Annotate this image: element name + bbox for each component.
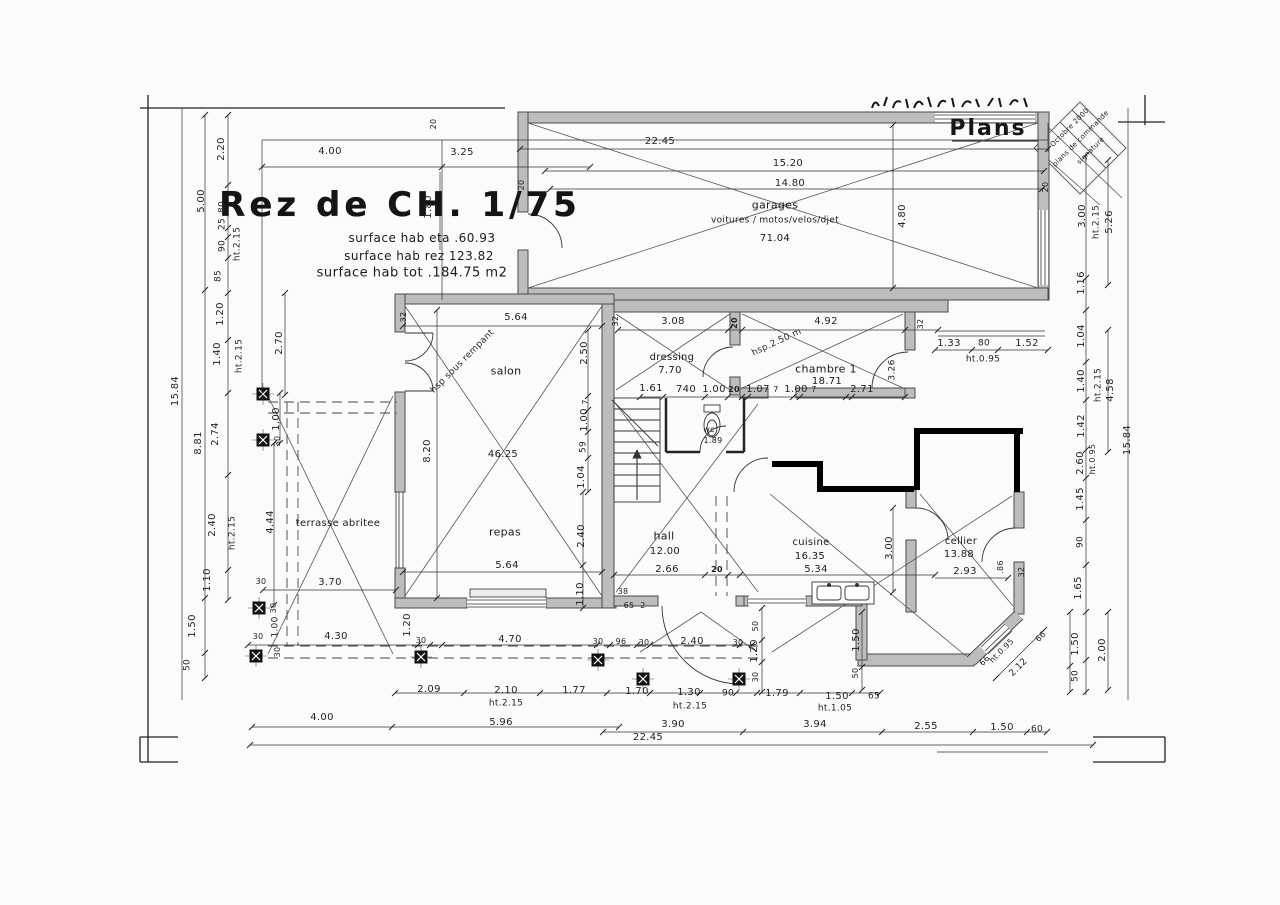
dimension-label: 20	[731, 317, 739, 329]
dimension-label: 1.50	[825, 692, 848, 702]
dimension-label: 30	[274, 436, 282, 447]
dimension-label: 15.84	[171, 376, 181, 406]
room-label: 71.04	[760, 234, 790, 244]
dimension-label: ht.2.15	[1093, 205, 1102, 239]
dimension-label: 4.44	[266, 510, 276, 533]
dimension-label: 2.60	[1076, 451, 1086, 474]
dimension-label: 1.00	[702, 385, 725, 395]
dimension-label: 90	[1077, 536, 1086, 548]
room-label: 16.35	[795, 552, 825, 562]
dimension-label: 1.07	[746, 385, 769, 395]
dimension-label: 30	[639, 639, 650, 647]
dimension-label: 32	[917, 319, 925, 330]
dimension-label: 1.50	[990, 723, 1013, 733]
room-label: cuisine	[792, 538, 829, 548]
dimension-label: 3.26	[889, 359, 898, 380]
dimension-label: 5.64	[504, 313, 527, 323]
dimension-label: 60	[1031, 726, 1043, 735]
dimension-label: 1.33	[937, 339, 960, 349]
dimension-label: 5.64	[495, 561, 518, 571]
dimension-label: 85	[215, 270, 224, 282]
dimension-label: 1.04	[1077, 324, 1087, 347]
dimension-label: ht.2.15	[489, 700, 523, 709]
title-text: surface hab eta .60.93	[349, 232, 496, 244]
dimension-label: 22.45	[633, 733, 663, 743]
room-label: voitures / motos/velos/djet	[711, 217, 839, 226]
dimension-label: 1.00	[784, 385, 807, 395]
dimension-label: 50	[752, 621, 760, 632]
dimension-label: 1.42	[1077, 414, 1087, 437]
dimension-label: 1.40	[1077, 369, 1087, 392]
dimension-label: 3.00	[885, 536, 895, 559]
dimension-label: 30	[256, 578, 267, 586]
dimension-label: 5.34	[804, 565, 827, 575]
dimension-label: 1.61	[639, 384, 662, 394]
dimension-label: 20	[1042, 182, 1050, 193]
room-label: 12.00	[650, 547, 680, 557]
title-text: surface hab rez 123.82	[344, 250, 494, 262]
dimension-label: 4.92	[814, 317, 837, 327]
dimension-label: 1.50	[852, 628, 862, 651]
dimension-label: 2.09	[417, 685, 440, 695]
dimension-label: 65	[624, 602, 635, 610]
room-label: 7.70	[658, 366, 681, 376]
dimension-label: 8.20	[423, 439, 433, 462]
room-label: 2.66	[655, 565, 678, 575]
dimension-label: 2.20	[217, 137, 227, 160]
dimension-label: 1.79	[765, 689, 788, 699]
dimension-label: ht.2.15	[229, 516, 238, 550]
dimension-label: 2.00	[1098, 638, 1108, 661]
dimension-label: 1.00	[580, 408, 590, 431]
dimension-label: 30	[416, 637, 427, 645]
dimension-label: 2	[640, 602, 645, 610]
dimension-label: 1.20	[216, 302, 226, 325]
dimension-label: 1.10	[203, 568, 213, 591]
dimension-label: ht.0.95	[1089, 444, 1097, 475]
dimension-label: 50	[1072, 670, 1081, 682]
dimension-label: 90	[722, 690, 734, 699]
room-label: chambre 1	[795, 364, 857, 375]
dimension-label: 1.50	[1071, 632, 1081, 655]
room-label: repas	[489, 527, 521, 538]
dimension-label: 4.30	[324, 632, 347, 642]
room-label: salon	[491, 366, 522, 377]
dimension-label: 1.50	[188, 614, 198, 637]
dimension-label: ht.2.15	[234, 227, 243, 261]
dimension-label: 38	[618, 588, 629, 596]
dimension-label: 14.80	[775, 179, 805, 189]
dimension-label: 3.70	[318, 578, 341, 588]
dimension-label: 32	[400, 312, 408, 323]
dimension-label: 30	[270, 603, 278, 614]
dimension-label: 2.71	[850, 385, 873, 395]
dimension-label: 2.12	[1008, 657, 1029, 678]
room-label: terrasse abritee	[296, 519, 380, 529]
dimension-label: 30	[733, 639, 744, 647]
dimension-label: ht.0.95	[966, 356, 1000, 365]
dimension-label: 22.45	[645, 137, 675, 147]
dimension-label: 5.00	[197, 189, 207, 212]
dimension-label: 1.00	[272, 616, 281, 637]
dimension-label: ht.1.05	[818, 705, 852, 714]
dimension-label: 20	[711, 566, 723, 574]
dimension-label: 4.58	[1106, 378, 1116, 401]
dimension-label: 7	[811, 386, 816, 394]
dimension-label: 740	[676, 385, 696, 395]
dimension-label: 65	[868, 693, 880, 702]
room-label: hall	[653, 531, 674, 542]
dimension-label: 25	[219, 218, 228, 230]
sheet-label: Plans	[949, 118, 1026, 140]
dimension-label: 1.45	[1076, 487, 1086, 510]
dimension-label: 30	[593, 638, 604, 646]
dimension-label: 8.81	[194, 431, 204, 454]
room-label: 13.88	[944, 550, 974, 560]
dimension-label: 80	[219, 201, 228, 213]
dimension-label: .86	[997, 560, 1005, 574]
dimension-label: 2.40	[208, 513, 218, 536]
dimension-label: 50	[852, 668, 860, 679]
dimension-label: 96	[616, 638, 627, 646]
dimension-label: 2.55	[914, 722, 937, 732]
dimension-label: 20	[430, 119, 438, 130]
dimension-label: 5.26	[1105, 210, 1115, 233]
dimension-label: 3.90	[661, 720, 684, 730]
dimension-label: 4.70	[498, 635, 521, 645]
dimension-label: 30	[253, 633, 264, 641]
dimension-label: 32	[1018, 567, 1026, 578]
dimension-label: 30	[274, 647, 282, 658]
dimension-label: 3.00	[1078, 204, 1088, 227]
dimension-label: 1.70	[625, 687, 648, 697]
room-label: garages	[752, 200, 799, 211]
dimension-label: 15.20	[773, 159, 803, 169]
dimension-label: 7	[582, 399, 590, 404]
slope-note: hsp sous rempant	[430, 329, 497, 396]
dimension-label: 1.65	[1074, 576, 1084, 599]
dimension-label: 4.80	[898, 204, 908, 227]
floor-plan-page: Rez de CH. 1/75surface hab eta .60.93sur…	[0, 0, 1280, 905]
dimension-label: 1.52	[1015, 339, 1038, 349]
dimension-label: 3.08	[661, 317, 684, 327]
room-label: wc	[703, 426, 715, 434]
dimension-label: 3.25	[450, 148, 473, 158]
dimension-label: 59	[580, 441, 589, 453]
dimension-label: 1.30	[677, 688, 700, 698]
dimension-label: 90	[219, 240, 228, 252]
dimension-label: 4.00	[318, 147, 341, 157]
dimension-label: 15.84	[1123, 425, 1133, 455]
dimension-label: 1.16	[1077, 271, 1087, 294]
dimension-label: 2.40	[577, 524, 587, 547]
dimension-label: 30	[752, 672, 760, 683]
dimension-label: 2.93	[953, 567, 976, 577]
dimension-label: ht.2.15	[1095, 368, 1104, 402]
dimension-label: 1.10	[576, 582, 586, 605]
dimension-label: ht.2.15	[236, 339, 245, 373]
dimension-label: 2.70	[275, 331, 285, 354]
dimension-label: 32	[612, 316, 620, 327]
dimension-label: 20	[518, 180, 526, 191]
dimension-label: 1.04	[577, 465, 587, 488]
dimension-label: ht.0.95	[988, 637, 1015, 664]
title-text: surface hab tot .184.75 m2	[317, 267, 508, 280]
dimension-label: 2.40	[680, 637, 703, 647]
dimension-label: 66	[1034, 630, 1047, 643]
dimension-label: 1.20	[403, 613, 413, 636]
dimension-label: 1.00	[272, 407, 282, 430]
dimension-label: 3.94	[803, 720, 826, 730]
room-label: 46.25	[488, 450, 518, 460]
dimension-label: 7	[773, 386, 778, 394]
dimension-label: 1.80	[424, 195, 434, 218]
dimension-label: 4.00	[310, 713, 333, 723]
dimension-label: 5.96	[489, 718, 512, 728]
slope-note: hsp.2.50 m	[751, 328, 803, 359]
dimension-label: 2.74	[211, 422, 221, 445]
dimension-label: 80	[978, 340, 990, 349]
dimension-label: 1.40	[213, 342, 223, 365]
room-label: 1.89	[703, 437, 722, 445]
dimension-label: ht.2.15	[673, 703, 707, 712]
dimension-label: 1.20	[750, 639, 760, 662]
room-label: dressing	[650, 353, 695, 363]
room-label: cellier	[945, 537, 977, 547]
annotation-layer: Rez de CH. 1/75surface hab eta .60.93sur…	[0, 0, 1280, 905]
dimension-label: 50	[184, 659, 193, 671]
dimension-label: 1.77	[562, 686, 585, 696]
dimension-label: 2.50	[580, 341, 590, 364]
title-text: Rez de CH. 1/75	[219, 188, 581, 222]
dimension-label: 2.10	[494, 686, 517, 696]
dimension-label: 20	[728, 386, 740, 394]
